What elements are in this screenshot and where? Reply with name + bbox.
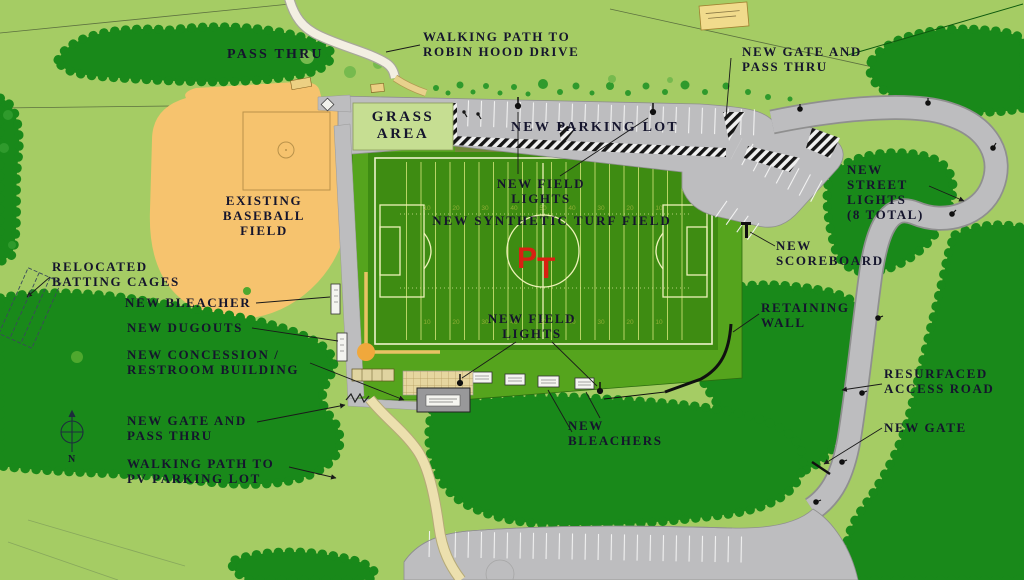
- bleacher-south-2: [505, 374, 525, 385]
- label-new-field-lights-top: NEW FIELD LIGHTS: [491, 176, 591, 206]
- svg-text:10: 10: [423, 319, 431, 326]
- bleacher-south-3: [538, 376, 559, 387]
- label-new-bleachers: NEW BLEACHERS: [568, 418, 663, 448]
- label-new-gate-pass-thru-top: NEW GATE AND PASS THRU: [742, 44, 862, 74]
- label-new-dugouts: NEW DUGOUTS: [127, 320, 243, 335]
- svg-text:20: 20: [452, 205, 460, 212]
- label-new-concession: NEW CONCESSION / RESTROOM BUILDING: [127, 347, 299, 377]
- bottom-survey-lines: [8, 520, 185, 580]
- svg-text:10: 10: [423, 205, 431, 212]
- svg-text:50: 50: [539, 205, 547, 212]
- label-new-gate-right: NEW GATE: [884, 420, 967, 435]
- dugout-west: [337, 333, 347, 361]
- svg-text:10: 10: [655, 205, 663, 212]
- site-plan: 1020 3040 5040 3020 10 1020 3040 5040 30…: [0, 0, 1024, 580]
- svg-text:30: 30: [597, 319, 605, 326]
- label-existing-baseball-field: EXISTING BASEBALL FIELD: [214, 193, 314, 238]
- site-plan-graphic: 1020 3040 5040 3020 10 1020 3040 5040 30…: [0, 0, 1024, 580]
- label-grass-area: GRASS AREA: [353, 109, 453, 143]
- label-new-street-lights: NEW STREET LIGHTS (8 TOTAL): [847, 162, 924, 222]
- label-resurfaced-access-road: RESURFACED ACCESS ROAD: [884, 366, 994, 396]
- label-new-bleacher: NEW BLEACHER: [125, 295, 251, 310]
- label-retaining-wall: RETAINING WALL: [761, 300, 850, 330]
- label-new-parking-lot: NEW PARKING LOT: [511, 120, 671, 135]
- label-new-field-lights-bottom: NEW FIELD LIGHTS: [482, 311, 582, 341]
- svg-text:20: 20: [452, 319, 460, 326]
- svg-text:20: 20: [626, 205, 634, 212]
- svg-text:20: 20: [626, 319, 634, 326]
- svg-text:30: 30: [597, 205, 605, 212]
- svg-text:10: 10: [655, 319, 663, 326]
- svg-text:30: 30: [481, 205, 489, 212]
- field-monogram-p: P: [517, 244, 537, 274]
- compass-north-label: N: [68, 454, 75, 465]
- label-new-scoreboard: NEW SCOREBOARD: [776, 238, 884, 268]
- label-new-gate-pass-thru-left: NEW GATE AND PASS THRU: [127, 413, 247, 443]
- label-walking-path-robin-hood: WALKING PATH TO ROBIN HOOD DRIVE: [423, 29, 579, 59]
- label-walking-path-pv: WALKING PATH TO PV PARKING LOT: [127, 456, 274, 486]
- svg-text:40: 40: [510, 205, 518, 212]
- field-monogram-t: T: [537, 254, 555, 284]
- label-relocated-batting-cages: RELOCATED BATTING CAGES: [52, 259, 180, 289]
- bleacher-south-1: [472, 372, 492, 383]
- bleacher-south-4: [575, 378, 594, 389]
- dugout-strip: [352, 369, 394, 381]
- label-pass-thru: PASS THRU: [227, 47, 324, 62]
- bleacher-west: [331, 284, 340, 314]
- label-new-synthetic-turf-field: NEW SYNTHETIC TURF FIELD: [427, 213, 677, 228]
- svg-text:40: 40: [568, 205, 576, 212]
